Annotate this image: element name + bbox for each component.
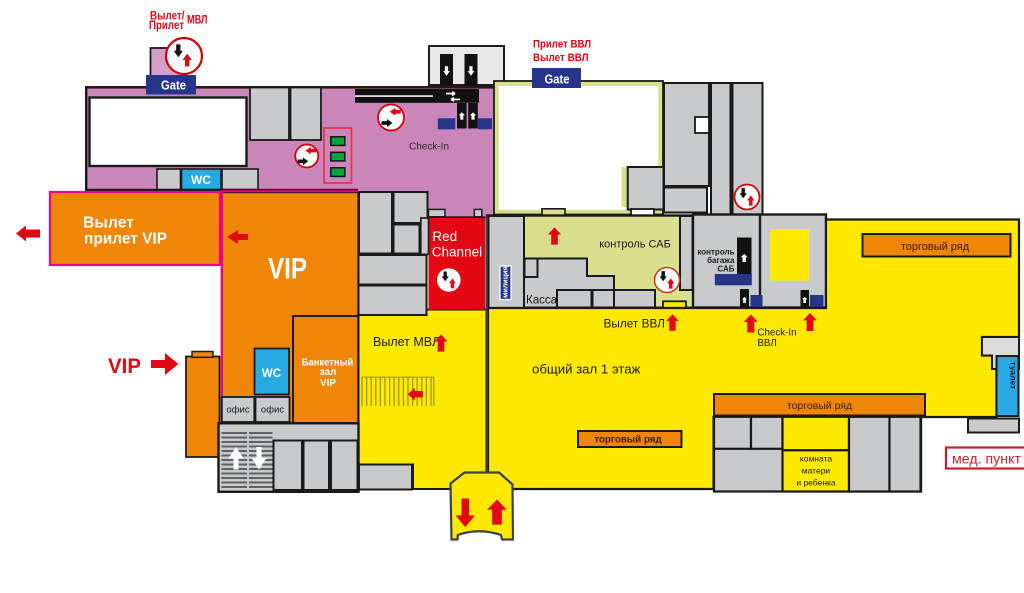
svg-text:VIP: VIP [268, 253, 307, 286]
svg-text:туалет: туалет [1009, 362, 1019, 390]
svg-text:Прилет ВВЛ: Прилет ВВЛ [533, 39, 591, 51]
svg-text:VIP: VIP [320, 378, 336, 389]
svg-text:САБ: САБ [717, 265, 734, 274]
svg-text:торговый ряд: торговый ряд [787, 400, 852, 412]
svg-text:мед. пункт: мед. пункт [952, 451, 1021, 467]
svg-text:Прилет: Прилет [149, 20, 184, 32]
svg-text:офис: офис [226, 405, 249, 416]
svg-text:Channel: Channel [432, 244, 482, 259]
svg-text:общий зал 1 этаж: общий зал 1 этаж [532, 362, 641, 377]
svg-text:VIP: VIP [108, 355, 141, 378]
svg-text:Gate: Gate [545, 71, 570, 86]
svg-text:зал: зал [320, 367, 337, 378]
svg-text:Red: Red [432, 229, 457, 244]
svg-text:Вылет ВВЛ: Вылет ВВЛ [533, 52, 589, 64]
svg-text:торговый ряд: торговый ряд [901, 241, 970, 253]
svg-text:Вылет ВВЛ: Вылет ВВЛ [604, 317, 665, 331]
svg-text:контроль САБ: контроль САБ [599, 239, 671, 251]
svg-text:милиция: милиция [501, 266, 510, 298]
svg-text:комната: комната [800, 454, 832, 464]
svg-text:Gate: Gate [161, 77, 186, 92]
svg-text:торговый ряд: торговый ряд [594, 435, 662, 446]
svg-text:офис: офис [261, 405, 284, 416]
svg-text:Check-In: Check-In [409, 142, 449, 153]
svg-text:МВЛ: МВЛ [187, 15, 208, 27]
svg-text:Вылет МВЛ: Вылет МВЛ [373, 335, 440, 349]
svg-text:WC: WC [262, 368, 281, 380]
svg-text:матери: матери [802, 466, 831, 476]
svg-text:и ребенка: и ребенка [796, 478, 836, 488]
svg-text:ВВЛ: ВВЛ [757, 338, 776, 349]
svg-text:Касса: Касса [526, 295, 558, 307]
svg-text:WC: WC [191, 173, 211, 187]
svg-text:прилет VIP: прилет VIP [84, 231, 167, 248]
svg-text:Вылет: Вылет [83, 215, 134, 232]
